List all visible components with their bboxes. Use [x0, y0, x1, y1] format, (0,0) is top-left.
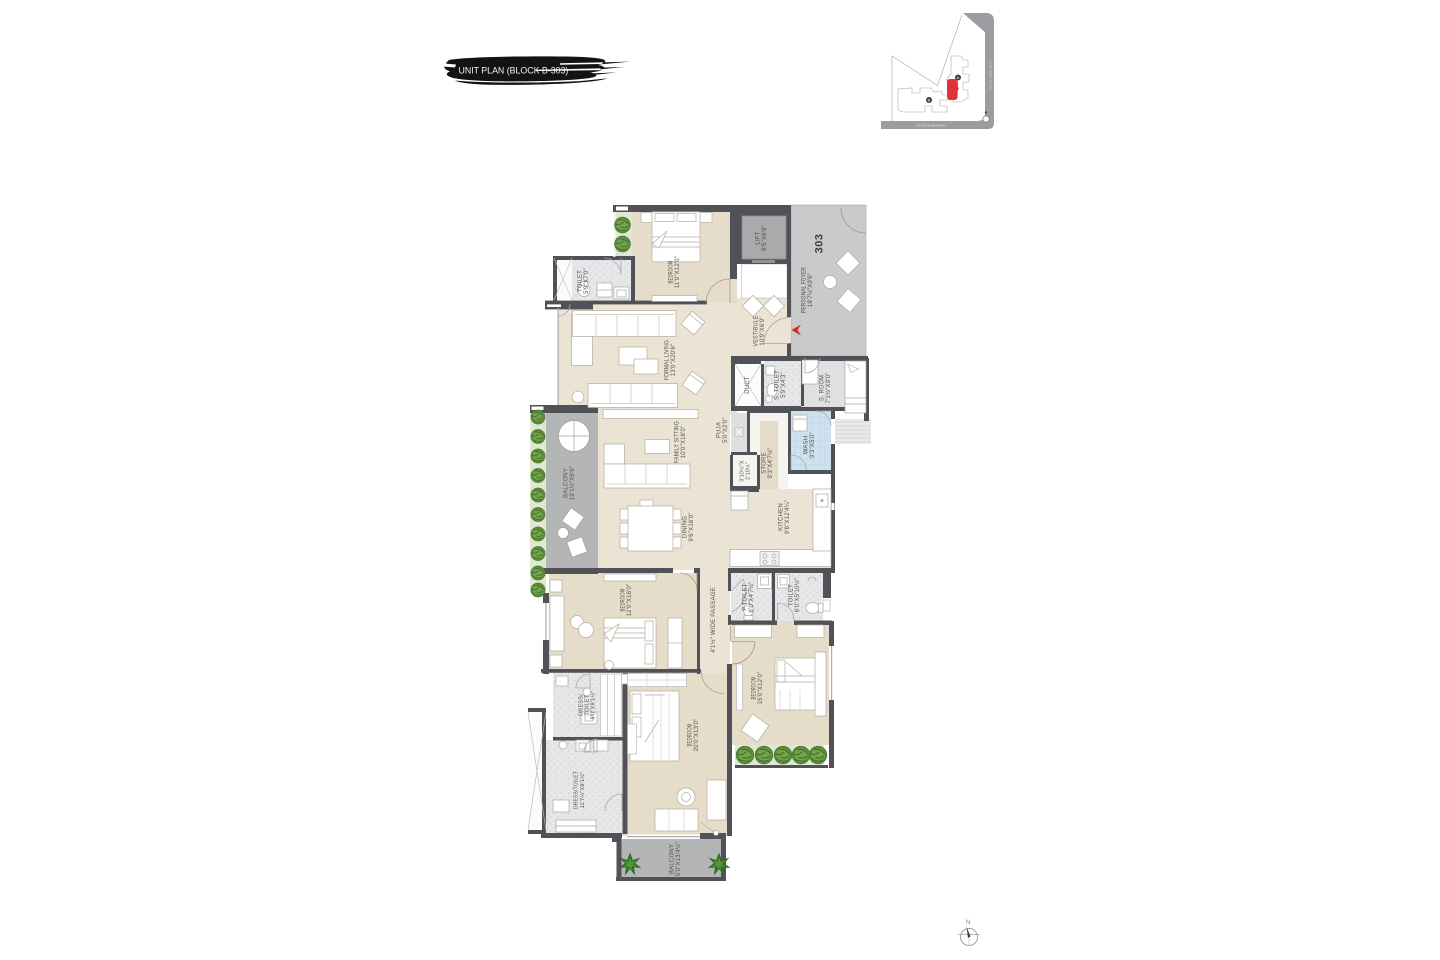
svg-text:BEDROOM: BEDROOM — [688, 724, 694, 747]
svg-text:20'0"X13'0": 20'0"X13'0" — [694, 719, 700, 752]
svg-text:PERSONAL FOYER: PERSONAL FOYER — [802, 267, 808, 313]
svg-text:11'0"X12'0": 11'0"X12'0" — [675, 256, 681, 288]
svg-text:10'0"X16'0": 10'0"X16'0" — [681, 426, 687, 459]
svg-text:N: N — [966, 920, 970, 926]
svg-text:DUCT: DUCT — [745, 376, 751, 394]
svg-text:FAMILY SITTING: FAMILY SITTING — [675, 421, 681, 463]
svg-text:5'9"X7'0": 5'9"X7'0" — [584, 268, 590, 294]
svg-text:7'1½"X9'0": 7'1½"X9'0" — [825, 373, 832, 404]
svg-text:13'0"X20'6": 13'0"X20'6" — [671, 344, 677, 377]
svg-text:A: A — [957, 75, 960, 80]
svg-text:18.0 M WIDE ROAD: 18.0 M WIDE ROAD — [989, 60, 993, 90]
svg-text:KITCHEN: KITCHEN — [779, 503, 785, 531]
svg-text:10'9"X6'9": 10'9"X6'9" — [760, 316, 766, 345]
svg-text:15'0"X12'0": 15'0"X12'0" — [758, 672, 764, 705]
svg-text:11'7½"X9'1½": 11'7½"X9'1½" — [579, 772, 586, 809]
svg-text:18'7½"X9'6": 18'7½"X9'6" — [807, 273, 814, 307]
svg-text:LIFT: LIFT — [756, 231, 762, 244]
svg-text:BEDROOM: BEDROOM — [752, 677, 758, 700]
svg-text:UNIT PLAN (BLOCK B-303): UNIT PLAN (BLOCK B-303) — [459, 66, 569, 76]
svg-text:PUJA: PUJA — [717, 422, 723, 438]
svg-text:2'10½": 2'10½" — [745, 462, 752, 480]
svg-text:P.TOILET: P.TOILET — [743, 583, 749, 611]
svg-text:BEDROOM: BEDROOM — [621, 589, 627, 612]
svg-text:FORMAL LIVING: FORMAL LIVING — [665, 340, 671, 380]
svg-text:S. ROOM: S. ROOM — [820, 375, 826, 401]
svg-text:6'0"X4'7½": 6'0"X4'7½" — [748, 582, 755, 613]
svg-text:5'0"X2'0": 5'0"X2'0" — [723, 417, 729, 443]
svg-text:BEDROOM: BEDROOM — [669, 261, 675, 284]
svg-text:19'1½"X6'6": 19'1½"X6'6" — [569, 466, 576, 500]
svg-text:9'3"X4'7½": 9'3"X4'7½" — [767, 448, 774, 479]
svg-text:9'6"X12'4¼": 9'6"X12'4¼" — [785, 500, 791, 534]
svg-text:8'0"X9'1½": 8'0"X9'1½" — [590, 691, 597, 720]
svg-text:5'9"X4'3": 5'9"X4'3" — [781, 372, 787, 398]
svg-text:6'5"X6'8": 6'5"X6'8" — [762, 225, 768, 251]
svg-text:TOILET: TOILET — [578, 270, 584, 292]
svg-text:303: 303 — [814, 234, 826, 254]
svg-text:24.0 M WIDE ROAD: 24.0 M WIDE ROAD — [916, 123, 946, 127]
svg-text:3'10½"X: 3'10½"X — [739, 460, 746, 482]
svg-text:BALCONY: BALCONY — [670, 844, 676, 874]
svg-text:DINING: DINING — [683, 516, 689, 538]
svg-text:STORE: STORE — [762, 452, 768, 474]
svg-text:6'0"X5'10½": 6'0"X5'10½" — [794, 578, 801, 612]
svg-text:9'3"X5'0": 9'3"X5'0" — [810, 432, 816, 458]
svg-text:DRESS/TOILET: DRESS/TOILET — [574, 771, 580, 809]
svg-text:9'6"X16'0": 9'6"X16'0" — [689, 512, 695, 541]
svg-text:VESTIBULE: VESTIBULE — [754, 316, 760, 347]
svg-text:WASH: WASH — [804, 436, 810, 455]
svg-text:5'0"X13'4½": 5'0"X13'4½" — [675, 842, 682, 876]
svg-text:4'1½" WIDE PASSAGE: 4'1½" WIDE PASSAGE — [710, 587, 717, 653]
svg-text:TOILET: TOILET — [789, 584, 795, 606]
svg-text:12'0"X16'0": 12'0"X16'0" — [627, 584, 633, 617]
svg-text:B: B — [928, 98, 931, 103]
svg-text:S. TOILET: S. TOILET — [775, 370, 781, 400]
svg-text:BALCONY: BALCONY — [564, 468, 570, 498]
